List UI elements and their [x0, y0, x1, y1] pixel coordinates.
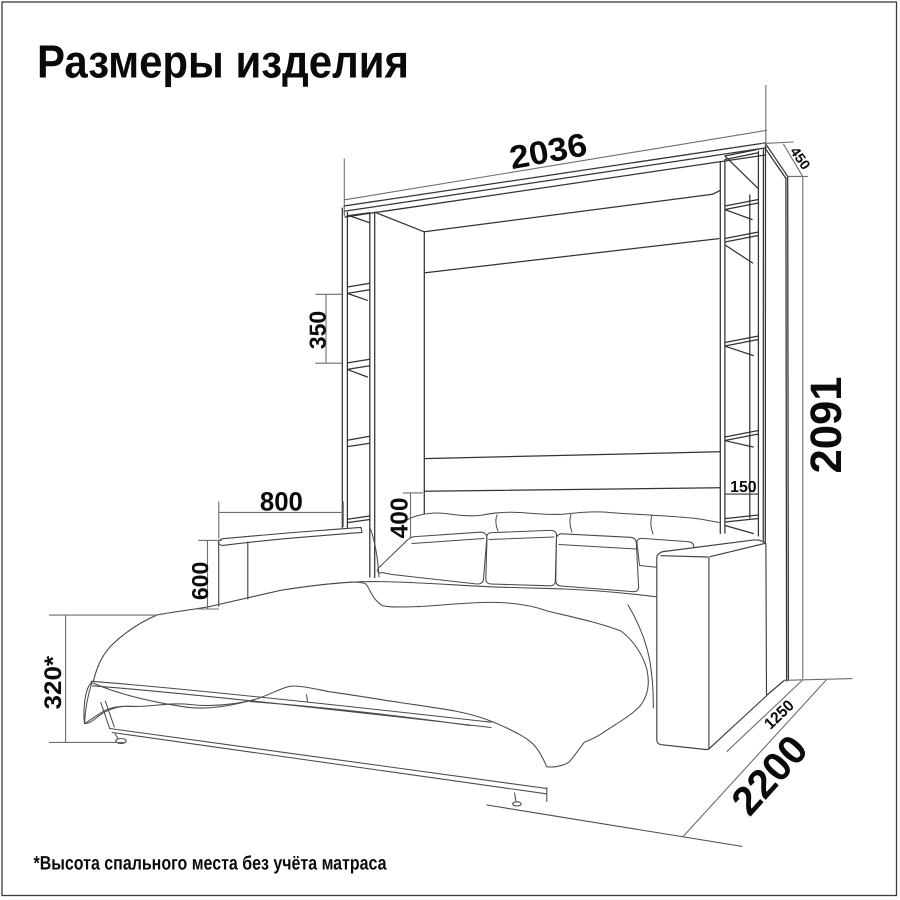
svg-text:800: 800: [260, 486, 303, 516]
svg-text:150: 150: [730, 479, 757, 496]
svg-text:2200: 2200: [722, 726, 816, 824]
svg-text:Размеры изделия: Размеры изделия: [37, 36, 409, 88]
svg-text:450: 450: [787, 144, 814, 173]
svg-text:2091: 2091: [802, 377, 851, 474]
svg-text:400: 400: [387, 497, 414, 538]
svg-text:*Высота спального места без уч: *Высота спального места без учёта матрас…: [34, 853, 387, 875]
svg-text:2036: 2036: [506, 126, 589, 177]
svg-text:350: 350: [304, 311, 330, 350]
svg-text:600: 600: [187, 562, 213, 601]
svg-text:320*: 320*: [40, 655, 67, 709]
